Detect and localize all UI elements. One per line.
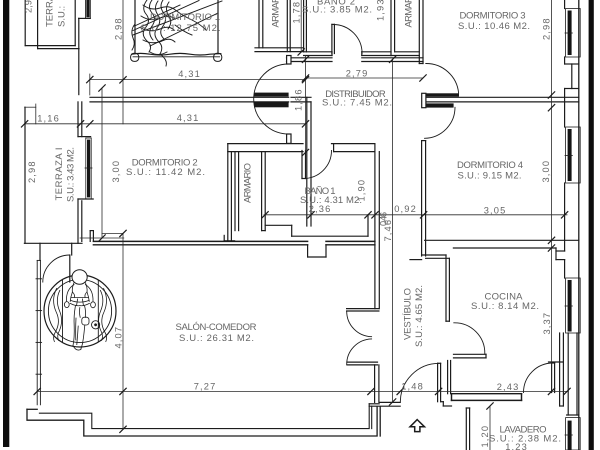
- svg-text:4,31: 4,31: [178, 69, 200, 79]
- svg-text:S.U.: 8.14 M2.: S.U.: 8.14 M2.: [471, 301, 539, 312]
- svg-text:ARMARIO: ARMARIO: [404, 0, 415, 28]
- svg-text:ARMARIO: ARMARIO: [271, 0, 282, 28]
- svg-text:2,98: 2,98: [27, 162, 37, 184]
- svg-text:1,93: 1,93: [376, 0, 386, 21]
- svg-text:3,37: 3,37: [542, 313, 552, 335]
- svg-text:4,31: 4,31: [177, 113, 199, 123]
- svg-text:2,98: 2,98: [24, 0, 34, 13]
- svg-text:2,79: 2,79: [346, 68, 368, 78]
- svg-text:2,43: 2,43: [497, 382, 519, 392]
- svg-text:S.U.:: S.U.:: [57, 6, 68, 27]
- svg-text:1,48: 1,48: [401, 382, 423, 392]
- svg-text:7,27: 7,27: [194, 382, 216, 392]
- svg-text:3,00: 3,00: [541, 161, 551, 183]
- svg-text:4,07: 4,07: [114, 327, 124, 349]
- svg-text:0,92: 0,92: [394, 204, 416, 214]
- svg-text:2,98: 2,98: [542, 19, 552, 41]
- svg-text:S.U.: 3.43 M2.: S.U.: 3.43 M2.: [66, 147, 77, 202]
- svg-text:S.U.: 4.65 M2.: S.U.: 4.65 M2.: [414, 285, 425, 347]
- svg-text:2,36: 2,36: [309, 204, 331, 214]
- svg-text:1,78: 1,78: [291, 2, 301, 24]
- svg-text:S.U.: 26.31 M2.: S.U.: 26.31 M2.: [179, 333, 254, 344]
- svg-text:VESTÍBULO: VESTÍBULO: [403, 288, 414, 340]
- svg-text:TERRAZA I: TERRAZA I: [54, 148, 65, 201]
- svg-text:S.U.: 3.85 M2.: S.U.: 3.85 M2.: [302, 5, 372, 16]
- svg-text:SALÓN-COMEDOR: SALÓN-COMEDOR: [176, 322, 257, 333]
- svg-text:TERRAZA: TERRAZA: [45, 0, 56, 27]
- svg-text:DORMITORIO 1: DORMITORIO 1: [150, 12, 220, 23]
- svg-text:1,23: 1,23: [505, 442, 527, 450]
- svg-text:1,86: 1,86: [294, 90, 304, 112]
- svg-text:1,16: 1,16: [37, 114, 59, 124]
- svg-text:7,46: 7,46: [383, 220, 393, 242]
- svg-text:S.U.: 7.45 M2.: S.U.: 7.45 M2.: [322, 98, 392, 109]
- svg-text:ARMARIO: ARMARIO: [243, 163, 254, 203]
- svg-text:2,98: 2,98: [114, 19, 124, 41]
- svg-text:S.U.: 12.75 M2.: S.U.: 12.75 M2.: [141, 23, 221, 34]
- svg-text:S.U.: 10.46 M2.: S.U.: 10.46 M2.: [458, 21, 530, 32]
- svg-text:1,90: 1,90: [357, 180, 367, 202]
- svg-text:S.U.: 11.42 M2.: S.U.: 11.42 M2.: [126, 167, 205, 178]
- svg-text:3,05: 3,05: [484, 206, 506, 216]
- svg-text:S.U.: 9.15 M2.: S.U.: 9.15 M2.: [458, 171, 522, 182]
- svg-text:3,00: 3,00: [111, 161, 121, 183]
- svg-text:DORMITORIO 4: DORMITORIO 4: [457, 160, 523, 171]
